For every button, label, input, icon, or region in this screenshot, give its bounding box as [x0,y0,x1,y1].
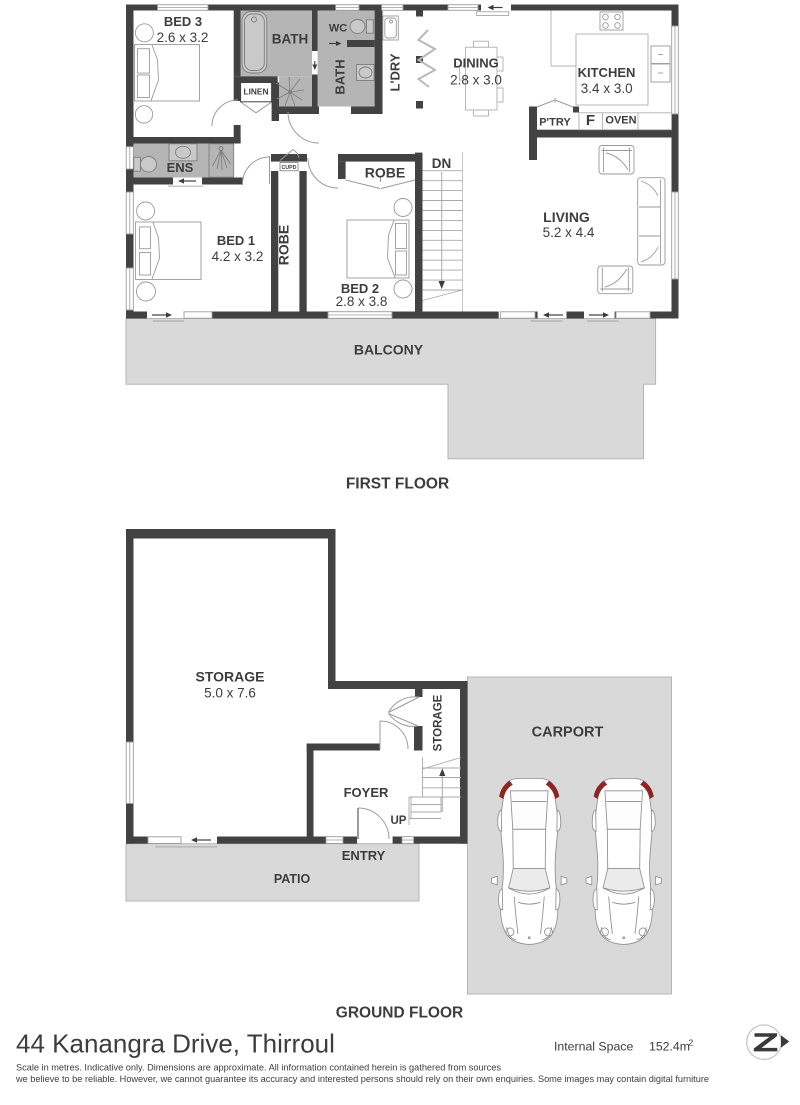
svg-text:STORAGE: STORAGE [196,669,265,685]
svg-text:DN: DN [432,156,452,171]
svg-text:BATH: BATH [333,59,348,94]
svg-text:5.0 x 7.6: 5.0 x 7.6 [204,686,256,701]
svg-text:F: F [586,112,595,129]
svg-text:FOYER: FOYER [344,785,389,800]
svg-text:BATH: BATH [272,32,309,47]
svg-text:2: 2 [689,1038,694,1048]
svg-text:2.8 x 3.0: 2.8 x 3.0 [450,72,502,87]
svg-text:BALCONY: BALCONY [354,342,424,358]
svg-text:we believe to be reliable. How: we believe to be reliable. However, we c… [15,1074,709,1084]
svg-text:L'DRY: L'DRY [388,53,403,91]
svg-text:LIVING: LIVING [543,209,590,225]
svg-text:2.8 x 3.8: 2.8 x 3.8 [336,294,388,309]
svg-text:44 Kanangra Drive, Thirroul: 44 Kanangra Drive, Thirroul [16,1029,335,1059]
svg-text:ENS: ENS [167,160,194,175]
svg-text:PATIO: PATIO [274,872,311,886]
svg-text:152.4m: 152.4m [649,1040,690,1054]
svg-text:Scale in metres. Indicative on: Scale in metres. Indicative only. Dimens… [16,1063,501,1073]
svg-text:ENTRY: ENTRY [342,848,386,863]
svg-text:BED 3: BED 3 [164,14,202,29]
svg-text:5.2 x 4.4: 5.2 x 4.4 [543,225,595,240]
svg-text:Internal Space: Internal Space [554,1040,633,1054]
svg-text:FIRST FLOOR: FIRST FLOOR [346,476,449,493]
svg-text:GROUND FLOOR: GROUND FLOOR [336,1005,463,1022]
svg-text:OVEN: OVEN [605,115,636,127]
svg-text:CUPD: CUPD [281,165,296,171]
svg-text:CARPORT: CARPORT [532,725,604,741]
svg-text:2.6 x 3.2: 2.6 x 3.2 [157,30,209,45]
svg-text:WC: WC [329,23,347,35]
svg-text:ROBE: ROBE [276,225,292,265]
svg-text:P'TRY: P'TRY [539,117,571,129]
svg-text:LINEN: LINEN [244,87,269,97]
svg-text:4.2 x 3.2: 4.2 x 3.2 [212,249,264,264]
svg-text:3.4 x 3.0: 3.4 x 3.0 [581,81,633,96]
svg-text:BED 1: BED 1 [217,233,255,248]
svg-text:ROBE: ROBE [365,165,405,181]
svg-text:DINING: DINING [453,56,499,71]
svg-text:STORAGE: STORAGE [433,694,445,751]
svg-text:KITCHEN: KITCHEN [578,65,636,80]
svg-text:UP: UP [391,815,407,827]
